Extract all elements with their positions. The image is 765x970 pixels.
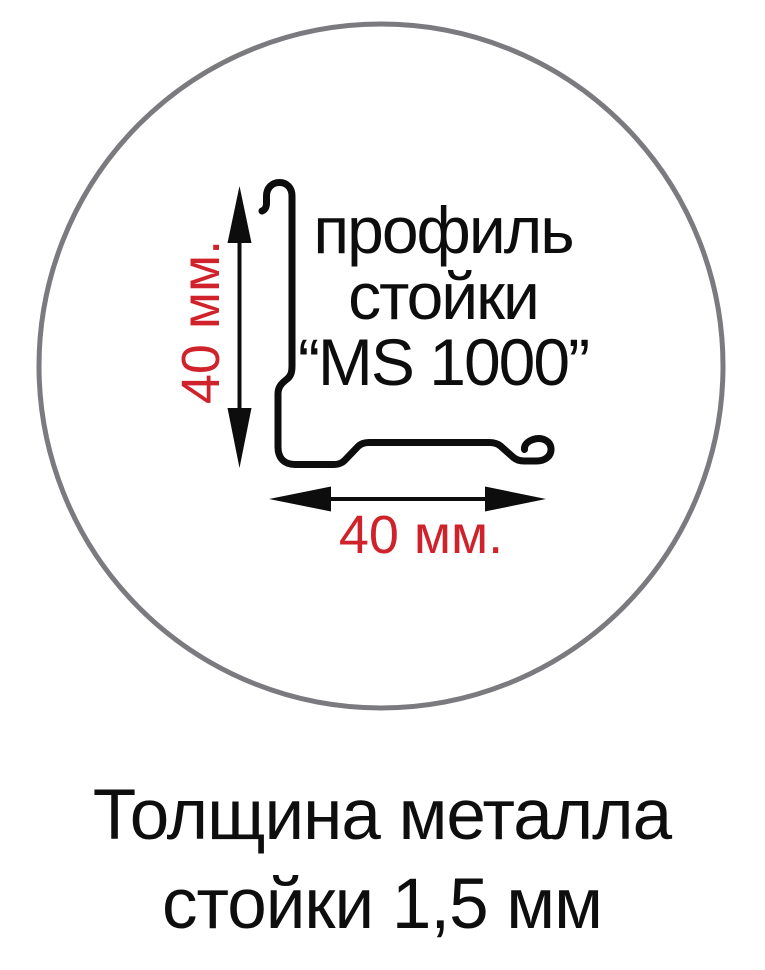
caption-line-2: стойки 1,5 мм [93, 860, 671, 949]
profile-name-line-3: “MS 1000” [298, 329, 588, 395]
caption-line-1: Толщина металла [93, 771, 671, 860]
horizontal-dimension-value: 40 мм. [339, 508, 503, 562]
profile-name-label: профиль стойки “MS 1000” [298, 197, 588, 395]
caption: Толщина металла стойки 1,5 мм [93, 771, 671, 949]
diagram-canvas: профиль стойки “MS 1000” 40 мм. 40 мм. Т… [0, 0, 765, 970]
vertical-dimension-value: 40 мм. [174, 240, 228, 404]
profile-name-line-1: профиль [298, 197, 588, 263]
vertical-dimension-arrow-icon [228, 186, 252, 468]
profile-name-line-2: стойки [298, 263, 588, 329]
